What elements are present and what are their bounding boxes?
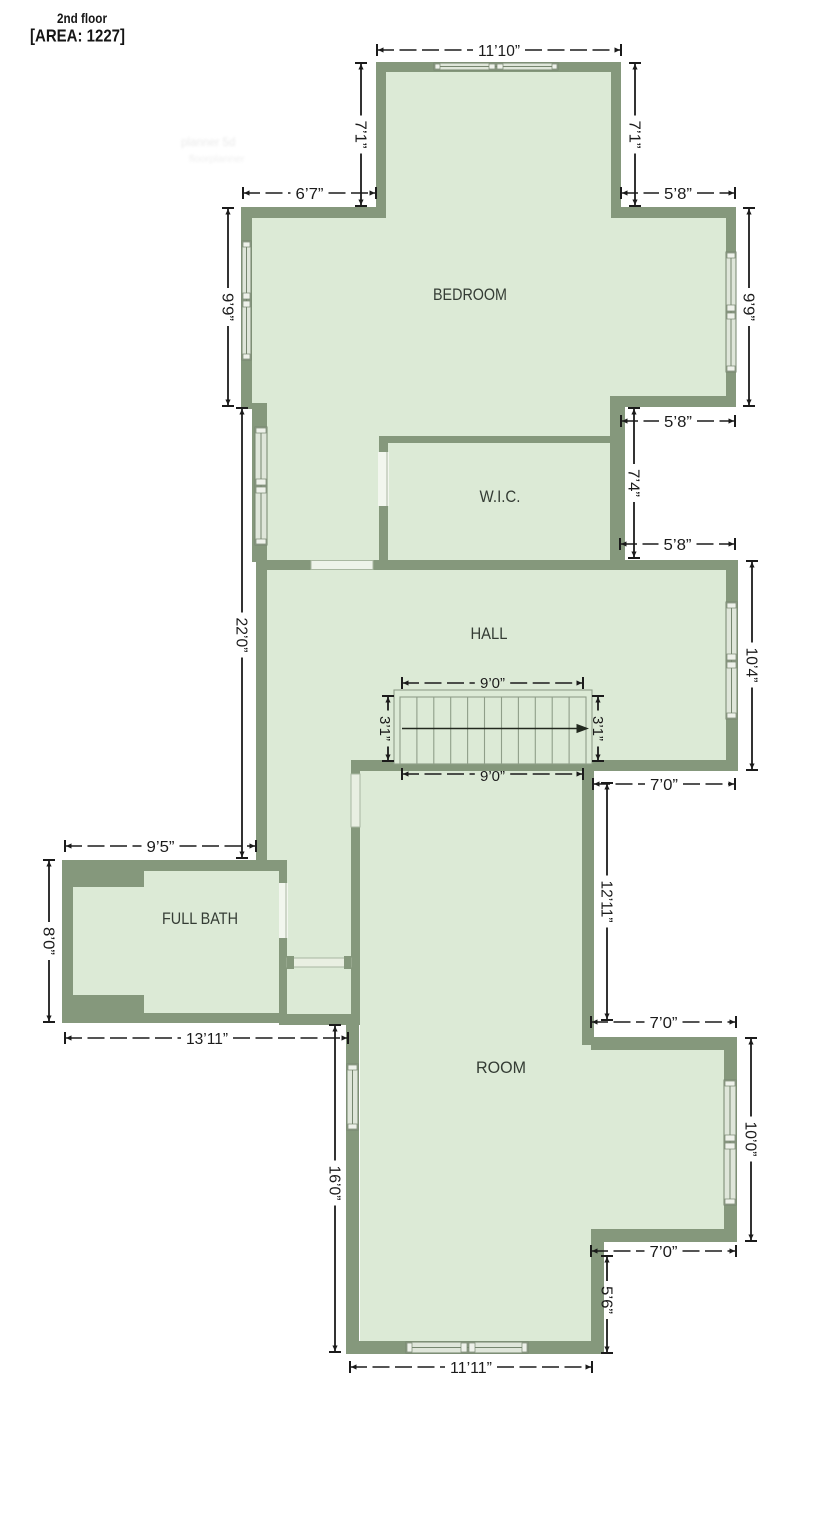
svg-text:7’1”: 7’1”: [351, 121, 368, 149]
svg-text:16’0”: 16’0”: [325, 1166, 342, 1201]
svg-text:7’0”: 7’0”: [650, 1244, 678, 1261]
svg-text:W.I.C.: W.I.C.: [480, 488, 521, 506]
svg-text:2nd floor: 2nd floor: [57, 11, 108, 26]
svg-text:9’0”: 9’0”: [480, 769, 505, 785]
svg-text:ROOM: ROOM: [476, 1059, 526, 1077]
svg-text:10’0”: 10’0”: [741, 1122, 758, 1157]
svg-text:6’7”: 6’7”: [296, 186, 324, 203]
svg-text:22’0”: 22’0”: [232, 618, 249, 653]
svg-text:7’4”: 7’4”: [624, 469, 641, 497]
svg-text:9’9”: 9’9”: [739, 293, 756, 321]
svg-text:5’8”: 5’8”: [664, 186, 692, 203]
svg-text:11’11”: 11’11”: [450, 1360, 492, 1377]
svg-text:BEDROOM: BEDROOM: [433, 286, 507, 304]
svg-text:13’11”: 13’11”: [186, 1031, 228, 1048]
svg-text:FULL BATH: FULL BATH: [162, 910, 238, 928]
svg-text:7’0”: 7’0”: [650, 777, 678, 794]
svg-text:3’1”: 3’1”: [589, 716, 605, 741]
svg-text:5’8”: 5’8”: [664, 537, 692, 554]
svg-text:7’0”: 7’0”: [650, 1015, 678, 1032]
svg-text:9’5”: 9’5”: [147, 839, 175, 856]
svg-text:10’4”: 10’4”: [742, 648, 759, 683]
svg-text:9’9”: 9’9”: [218, 293, 235, 321]
svg-text:5’8”: 5’8”: [664, 414, 692, 431]
svg-text:[AREA: 1227]: [AREA: 1227]: [30, 26, 125, 46]
svg-text:12’11”: 12’11”: [597, 881, 614, 923]
svg-text:11’10”: 11’10”: [478, 43, 520, 60]
svg-text:floorplanner: floorplanner: [189, 153, 245, 165]
svg-text:5’6”: 5’6”: [597, 1286, 614, 1314]
svg-text:9’0”: 9’0”: [480, 676, 505, 692]
svg-text:7’1”: 7’1”: [625, 121, 642, 149]
svg-text:planner 5d: planner 5d: [181, 137, 235, 149]
svg-text:8’0”: 8’0”: [39, 927, 56, 955]
svg-text:HALL: HALL: [471, 625, 508, 643]
svg-text:3’1”: 3’1”: [376, 716, 392, 741]
